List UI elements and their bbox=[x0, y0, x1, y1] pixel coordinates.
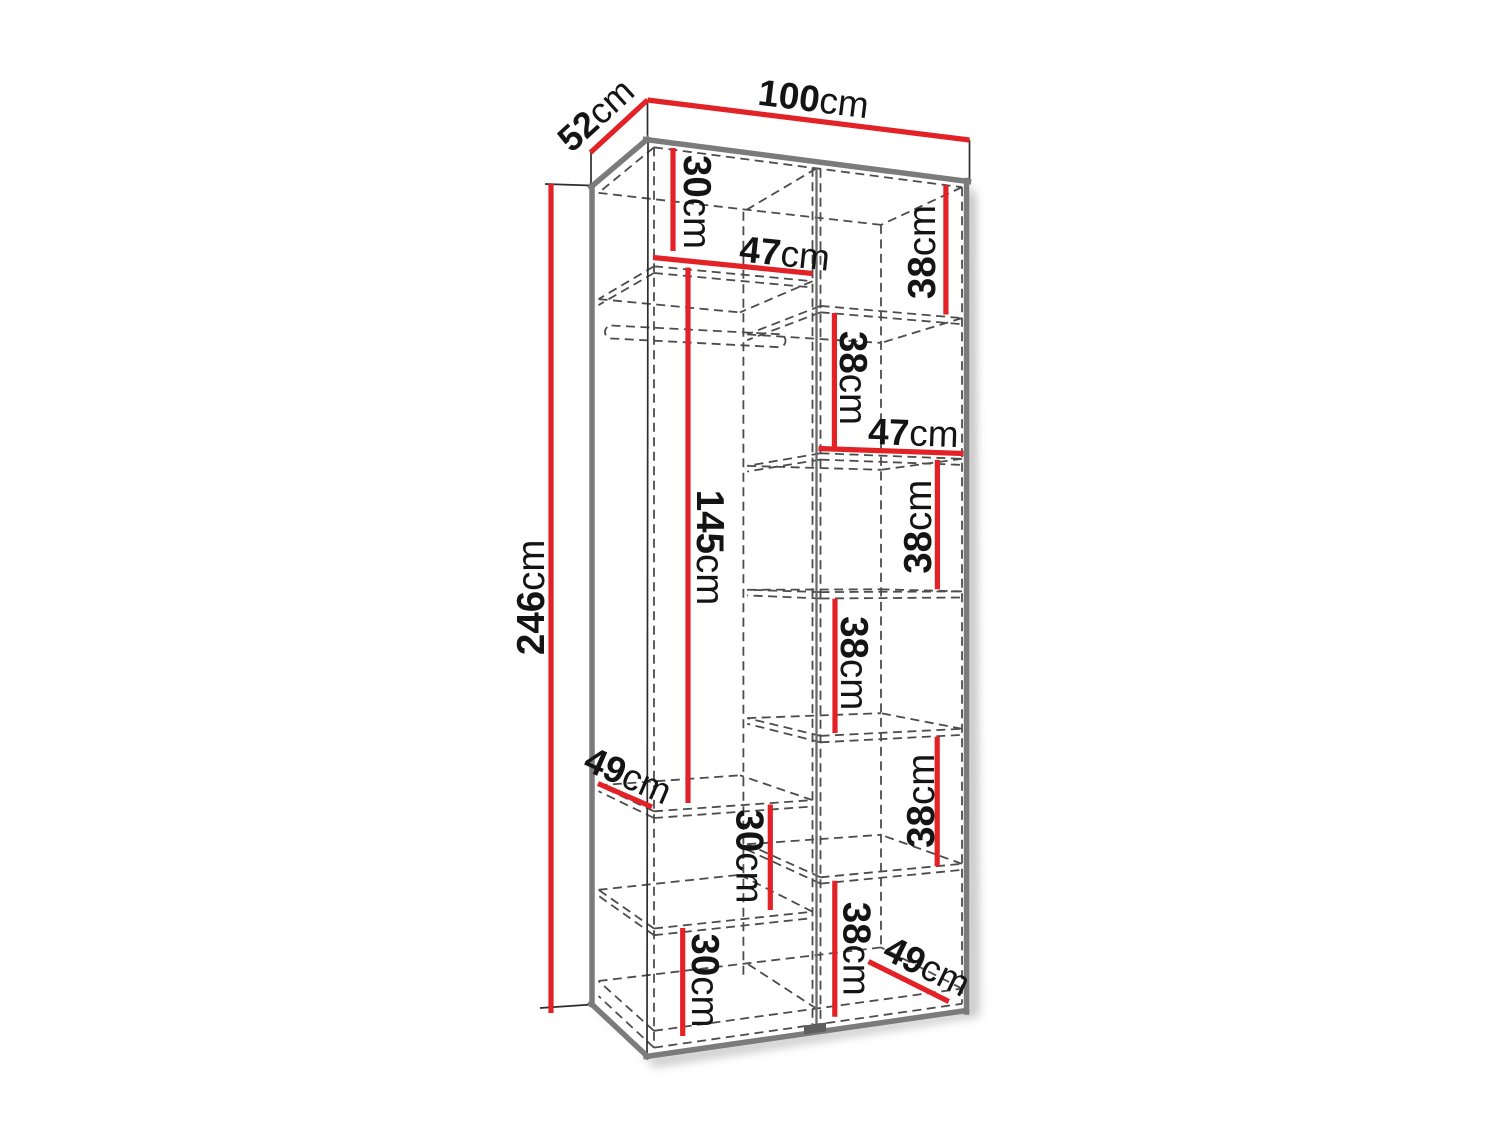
svg-text:38cm: 38cm bbox=[897, 480, 940, 574]
svg-text:30cm: 30cm bbox=[675, 155, 718, 249]
svg-text:38cm: 38cm bbox=[831, 331, 874, 425]
svg-text:38cm: 38cm bbox=[901, 205, 944, 299]
svg-text:30cm: 30cm bbox=[683, 933, 726, 1027]
svg-text:47cm: 47cm bbox=[868, 411, 960, 455]
svg-text:38cm: 38cm bbox=[900, 754, 943, 848]
svg-text:145cm: 145cm bbox=[688, 490, 731, 606]
svg-text:246cm: 246cm bbox=[510, 540, 553, 656]
svg-text:38cm: 38cm bbox=[832, 616, 875, 710]
svg-text:30cm: 30cm bbox=[728, 809, 771, 903]
svg-text:38cm: 38cm bbox=[835, 902, 878, 996]
